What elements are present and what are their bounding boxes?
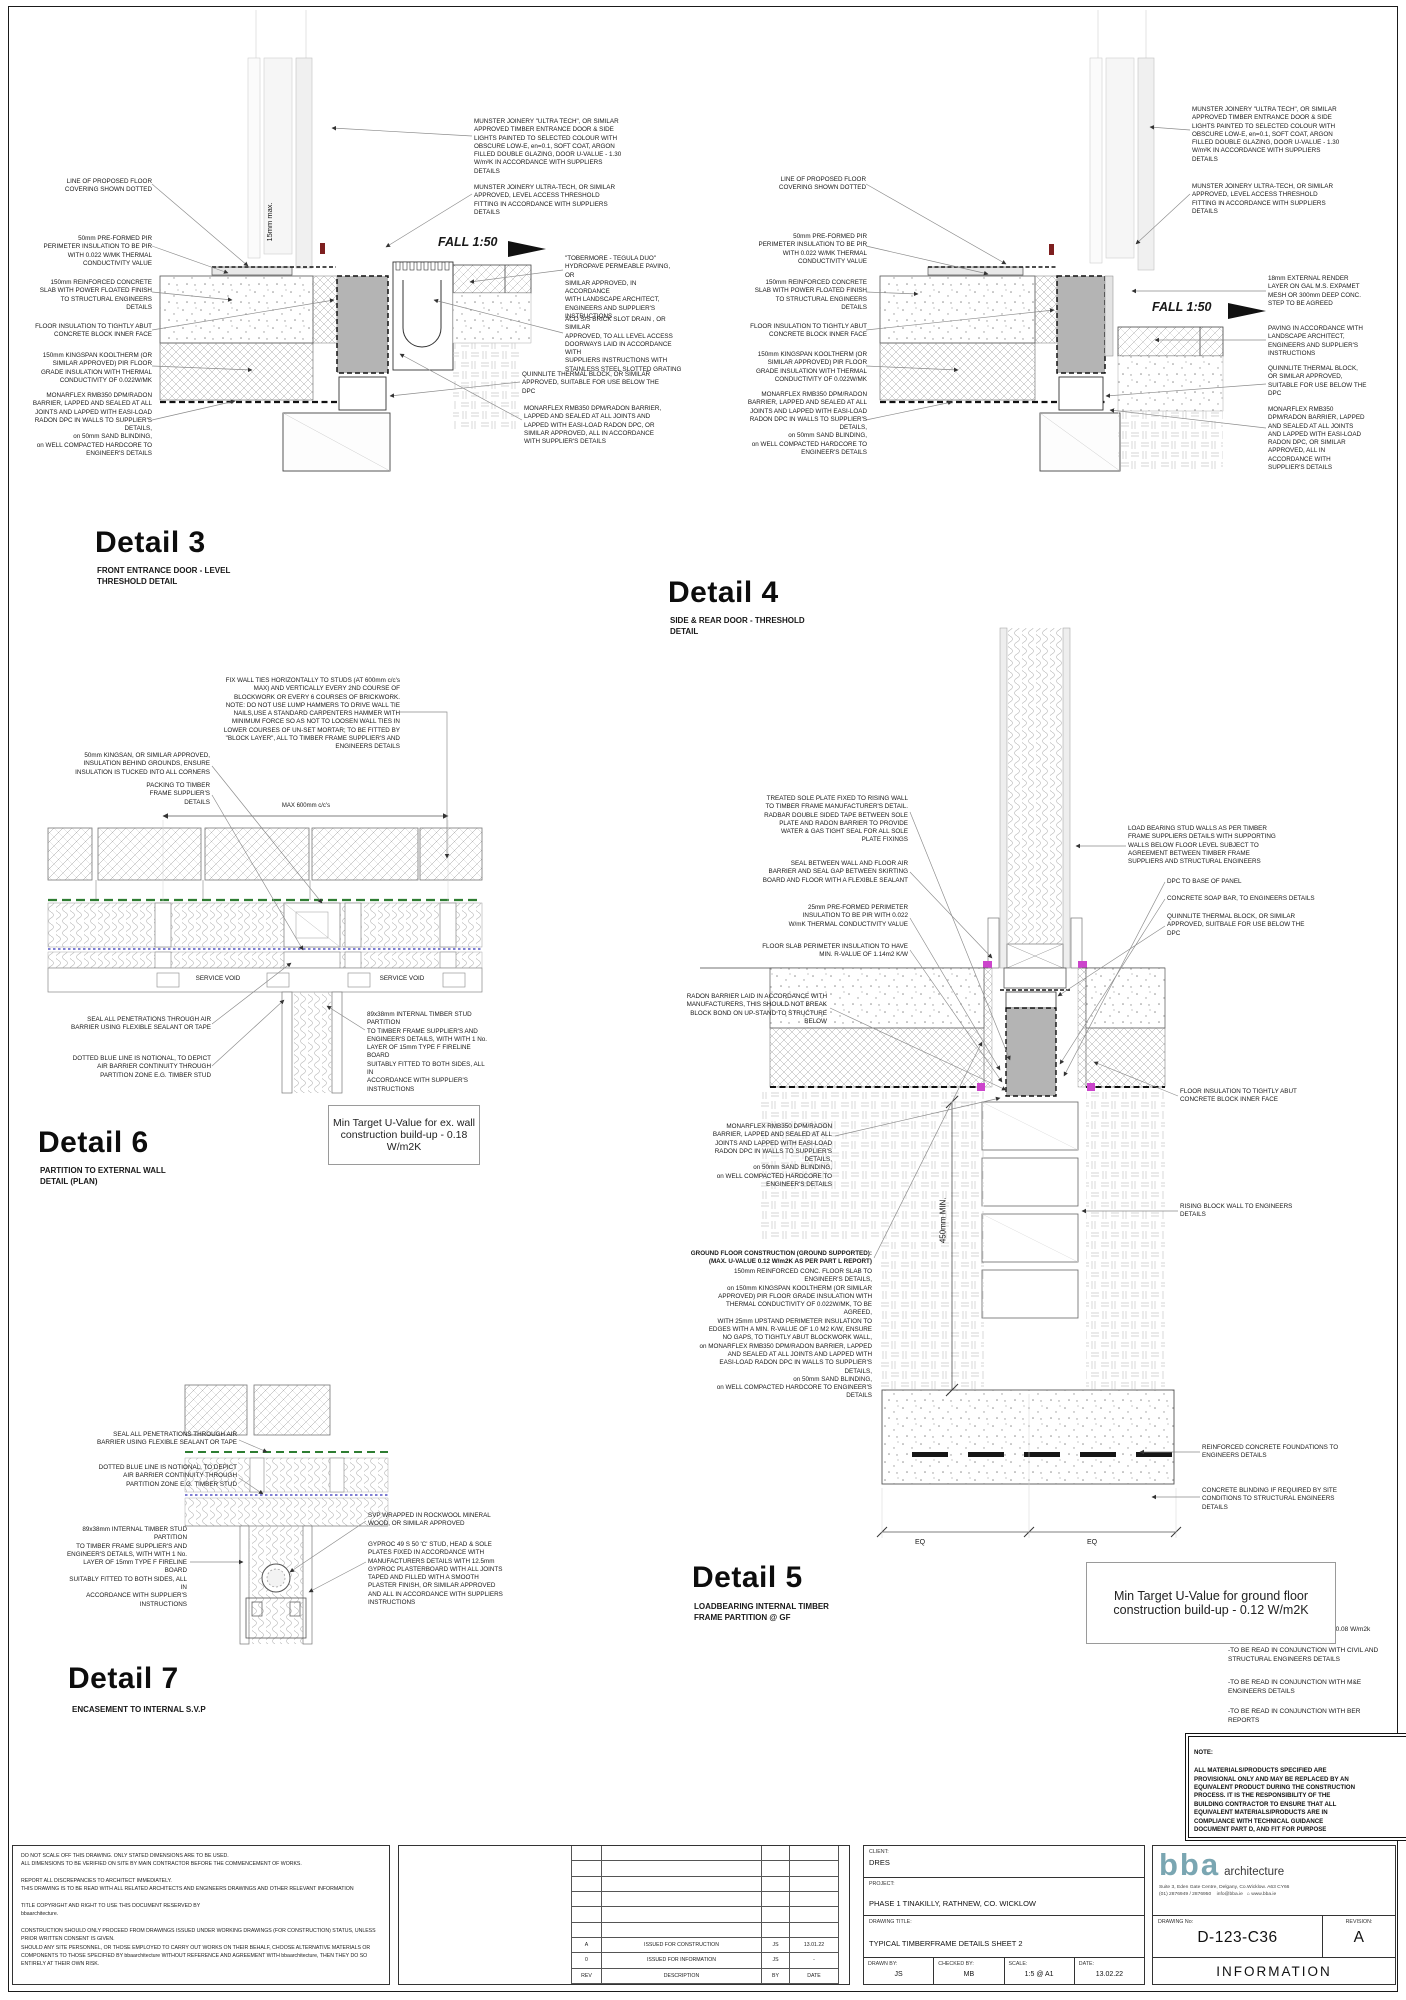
date-value: 13.02.22: [1079, 1971, 1140, 1978]
detail7-subtitle: ENCASEMENT TO INTERNAL S.V.P: [72, 1705, 252, 1716]
issue-cell: [761, 1892, 789, 1907]
signoff-row: DRAWN BY: JS CHECKED BY: MB SCALE: 1:5 @…: [864, 1958, 1144, 1984]
annotation-text: 50mm KINGSAN, OR SIMILAR APPROVED, INSUL…: [62, 752, 210, 777]
annotation-text: 150mm REINFORCED CONCRETE SLAB WITH POWE…: [741, 279, 867, 312]
issue-cell: [601, 1846, 761, 1861]
annotation-text: PACKING TO TIMBER FRAME SUPPLIER'S DETAI…: [110, 782, 210, 807]
issue-cell: [571, 1846, 601, 1861]
annotation-text: MUNSTER JOINERY "ULTRA TECH", OR SIMILAR…: [1192, 106, 1354, 164]
bba-logo-suffix: architecture: [1224, 1866, 1284, 1878]
issue-cell: REV: [571, 1969, 601, 1984]
annotation-text: 450mm MIN.: [939, 1180, 950, 1260]
note-box: NOTE: ALL MATERIALS/PRODUCTS SPECIFIED A…: [1185, 1733, 1406, 1841]
issue-cell: [601, 1892, 761, 1907]
annotation-text: 150mm KINGSPAN KOOLTHERM (OR SIMILAR APP…: [737, 351, 867, 384]
annotation-text: LOAD BEARING STUD WALLS AS PER TIMBER FR…: [1128, 825, 1280, 866]
issue-cell: [601, 1877, 761, 1892]
annotation-text: SERVICE VOID: [372, 975, 432, 983]
client-row: CLIENT: DRES: [864, 1846, 1144, 1878]
drawn-value: JS: [868, 1971, 929, 1978]
issue-cell: ISSUED FOR INFORMATION: [601, 1953, 761, 1968]
drawing-no-value: D-123-C36: [1158, 1929, 1317, 1947]
issue-cell: 0: [571, 1953, 601, 1968]
note-title: NOTE:: [1194, 1749, 1406, 1757]
detail3-title: Detail 3: [95, 528, 315, 558]
issue-cell: [571, 1907, 601, 1922]
issue-cell: [761, 1861, 789, 1876]
drawing-sheet: Detail 3FRONT ENTRANCE DOOR - LEVEL THRE…: [0, 0, 1406, 2000]
annotation-text: QUINNLITE THERMAL BLOCK, OR SIMILAR APPR…: [1167, 913, 1317, 938]
scale-label: SCALE:: [1009, 1961, 1028, 1967]
annotation-text: -TO BE READ IN CONJUNCTION WITH CIVIL AN…: [1228, 1647, 1400, 1664]
project-row: PROJECT: PHASE 1 TINAKILLY, RATHNEW, CO.…: [864, 1878, 1144, 1916]
issue-cell: JS: [761, 1938, 789, 1953]
issue-cell: [761, 1923, 789, 1938]
brand-web[interactable]: ⌂ www.bba.ie: [1247, 1892, 1276, 1897]
scale-value: 1:5 @ A1: [1009, 1971, 1070, 1978]
disclaimer-paragraph: CONSTRUCTION SHOULD ONLY PROCEED FROM DR…: [21, 1927, 381, 1967]
issue-cell: BY: [761, 1969, 789, 1984]
annotation-text: REINFORCED CONCRETE FOUNDATIONS TO ENGIN…: [1202, 1444, 1357, 1461]
annotation-text: MONARFLEX RMB350 DPM/RADON BARRIER, LAPP…: [695, 1123, 832, 1189]
annotation-text: 150mm KINGSPAN KOOLTHERM (OR SIMILAR APP…: [24, 352, 152, 385]
note-text: ALL MATERIALS/PRODUCTS SPECIFIED ARE PRO…: [1194, 1767, 1406, 1834]
annotation-text: SVP WRAPPED IN ROCKWOOL MINERAL WOOD, OR…: [368, 1512, 506, 1529]
annotation-text: 25mm PRE-FORMED PERIMETER INSULATION TO …: [745, 904, 908, 929]
annotation-text: 89x38mm INTERNAL TIMBER STUD PARTITION T…: [367, 1011, 489, 1094]
client-value: DRES: [869, 1858, 1139, 1867]
fall-label: FALL 1:50: [1152, 299, 1222, 316]
issue-cell: [571, 1861, 601, 1876]
annotation-text: 89x38mm INTERNAL TIMBER STUD PARTITION T…: [62, 1526, 187, 1609]
annotation-text: CONCRETE SOAP BAR, TO ENGINEERS DETAILS: [1167, 895, 1332, 903]
annotation-text: 50mm PRE-FORMED PIR PERIMETER INSULATION…: [745, 233, 867, 266]
annotation-text: RISING BLOCK WALL TO ENGINEERS DETAILS: [1180, 1203, 1305, 1220]
annotation-text: 150mm REINFORCED CONCRETE SLAB WITH POWE…: [28, 279, 152, 312]
issue-box: AISSUED FOR CONSTRUCTIONJS13.01.220ISSUE…: [398, 1845, 850, 1985]
issue-cell: [761, 1846, 789, 1861]
drawing-title-value: TYPICAL TIMBERFRAME DETAILS SHEET 2: [869, 1939, 1139, 1948]
issue-cell: [601, 1861, 761, 1876]
annotation-text: MUNSTER JOINERY "ULTRA TECH", OR SIMILAR…: [474, 118, 634, 176]
issue-cell: JS: [761, 1953, 789, 1968]
annotation-text: MUNSTER JOINERY ULTRA-TECH, OR SIMILAR A…: [1192, 183, 1354, 216]
annotation-text: FIX WALL TIES HORIZONTALLY TO STUDS (AT …: [205, 677, 400, 752]
annotation-text: 50mm PRE-FORMED PIR PERIMETER INSULATION…: [32, 235, 152, 268]
detail5-drawing: [700, 628, 1181, 1538]
issue-cell: 13.01.22: [789, 1938, 839, 1953]
annotation-text: -TO BE READ IN CONJUNCTION WITH M&E ENGI…: [1228, 1679, 1400, 1696]
disclaimer-box: DO NOT SCALE OFF THIS DRAWING. ONLY STAT…: [12, 1845, 390, 1985]
issue-cell: [789, 1846, 839, 1861]
title-block: DO NOT SCALE OFF THIS DRAWING. ONLY STAT…: [12, 1845, 1396, 1985]
fall-label: FALL 1:50: [438, 234, 508, 251]
annotation-text: ACO S/S BRICK SLOT DRAIN , OR SIMILAR AP…: [565, 316, 685, 374]
brand-contacts: (01) 2876949 / 2876950 info@bba.ie ⌂ www…: [1159, 1891, 1389, 1898]
detail7-title: Detail 7: [68, 1664, 288, 1694]
checked-value: MB: [938, 1971, 999, 1978]
annotation-text: LINE OF PROPOSED FLOOR COVERING SHOWN DO…: [40, 178, 152, 195]
annotation-text: MAX 600mm c/c's: [248, 803, 364, 811]
drawing-title-row: DRAWING TITLE: TYPICAL TIMBERFRAME DETAI…: [864, 1916, 1144, 1958]
date-label: DATE:: [1079, 1961, 1094, 1967]
brand-phone: (01) 2876949 / 2876950: [1159, 1892, 1211, 1897]
issue-cell: [601, 1907, 761, 1922]
issue-cell: [789, 1892, 839, 1907]
bba-logo: bba: [1159, 1849, 1220, 1880]
annotation-text: FLOOR INSULATION TO TIGHTLY ABUT CONCRET…: [1180, 1088, 1325, 1105]
issue-cell: [761, 1877, 789, 1892]
drawing-no-cell: DRAWING No: D-123-C36: [1153, 1916, 1323, 1957]
threshold-marker: [320, 243, 325, 254]
annotation-text: SERVICE VOID: [188, 975, 248, 983]
issue-cell: [601, 1923, 761, 1938]
disclaimer-paragraph: TITLE COPYRIGHT AND RIGHT TO USE THIS DO…: [21, 1902, 381, 1918]
issue-cell: DESCRIPTION: [601, 1969, 761, 1984]
annotation-text: -TO BE READ IN CONJUNCTION WITH BER REPO…: [1228, 1708, 1400, 1725]
annotation-text: QUINNLITE THERMAL BLOCK, OR SIMILAR APPR…: [522, 371, 664, 396]
annotation-text: FLOOR SLAB PERIMETER INSULATION TO HAVE …: [745, 943, 908, 960]
detail6-subtitle: PARTITION TO EXTERNAL WALL DETAIL (PLAN): [40, 1166, 210, 1188]
issue-cell: [571, 1892, 601, 1907]
disclaimer-paragraph: REPORT ALL DISCREPANCIES TO ARCHITECT IM…: [21, 1877, 381, 1893]
annotation-text: DOTTED BLUE LINE IS NOTIONAL, TO DEPICT …: [62, 1055, 211, 1080]
detail6-title: Detail 6: [38, 1128, 258, 1158]
annotation-text: SEAL ALL PENETRATIONS THROUGH AIR BARRIE…: [56, 1016, 211, 1033]
issue-table: AISSUED FOR CONSTRUCTIONJS13.01.220ISSUE…: [571, 1846, 839, 1984]
annotation-text: SEAL ALL PENETRATIONS THROUGH AIR BARRIE…: [85, 1431, 237, 1448]
project-label: PROJECT:: [869, 1881, 1139, 1887]
annotation-text: MONARFLEX RMB350 DPM/RADON BARRIER, LAPP…: [524, 405, 672, 446]
annotation-text: 15mm max.: [265, 192, 275, 252]
issue-cell: [789, 1861, 839, 1876]
annotation-text: RADON BARRIER LAID IN ACCORDANCE WITH MA…: [672, 993, 827, 1026]
detail4-subtitle: SIDE & REAR DOOR - THRESHOLD DETAIL: [670, 616, 850, 638]
annotation-text: TREATED SOLE PLATE FIXED TO RISING WALL …: [743, 795, 908, 845]
annotation-text: MONARFLEX RMB350 DPM/RADON BARRIER, LAPP…: [733, 391, 867, 457]
disclaimer-paragraph: DO NOT SCALE OFF THIS DRAWING. ONLY STAT…: [21, 1852, 381, 1868]
architect-box: bba architecture Suite 3, Eden Gate Cent…: [1152, 1845, 1396, 1985]
annotation-text: EQ: [890, 1538, 950, 1547]
drawing-no-label: DRAWING No:: [1158, 1919, 1193, 1925]
issue-cell: [761, 1907, 789, 1922]
fall-arrow: [508, 241, 546, 257]
issue-cell: [789, 1877, 839, 1892]
brand-email[interactable]: info@bba.ie: [1217, 1892, 1243, 1897]
brand-header: bba architecture Suite 3, Eden Gate Cent…: [1153, 1846, 1395, 1916]
annotation-text: QUINNLITE THERMAL BLOCK, OR SIMILAR APPR…: [1268, 365, 1368, 398]
project-info-box: CLIENT: DRES PROJECT: PHASE 1 TINAKILLY,…: [863, 1845, 1145, 1985]
issue-cell: -: [789, 1953, 839, 1968]
detail5-title: Detail 5: [692, 1563, 912, 1593]
annotation-text: GROUND FLOOR CONSTRUCTION (GROUND SUPPOR…: [680, 1250, 872, 1267]
u-value-box: Min Target U-Value for ground floor cons…: [1086, 1562, 1336, 1644]
annotation-text: DPC TO BASE OF PANEL: [1167, 878, 1277, 886]
revision-value: A: [1328, 1929, 1390, 1947]
issue-cell: DATE: [789, 1969, 839, 1984]
detail7-drawing: [185, 1385, 388, 1644]
issue-cell: A: [571, 1938, 601, 1953]
project-value: PHASE 1 TINAKILLY, RATHNEW, CO. WICKLOW: [869, 1899, 1139, 1908]
checked-label: CHECKED BY:: [938, 1961, 974, 1967]
annotation-text: FLOOR INSULATION TO TIGHTLY ABUT CONCRET…: [741, 323, 867, 340]
drawn-label: DRAWN BY:: [868, 1961, 898, 1967]
annotation-text: GYPROC 49 S 50 'C' STUD, HEAD & SOLE PLA…: [368, 1541, 510, 1607]
annotation-text: DOTTED BLUE LINE IS NOTIONAL, TO DEPICT …: [85, 1464, 237, 1489]
detail4-title: Detail 4: [668, 578, 888, 608]
detail3-subtitle: FRONT ENTRANCE DOOR - LEVEL THRESHOLD DE…: [97, 566, 277, 588]
annotation-text: "TOBERMORE - TEGULA DUO" HYDROPAVE PERME…: [565, 255, 679, 321]
detail4-drawing: [880, 10, 1266, 471]
annotation-text: PAVING IN ACCORDANCE WITH LANDSCAPE ARCH…: [1268, 325, 1368, 358]
annotation-text: MONARFLEX RMB350 DPM/RADON BARRIER, LAPP…: [20, 392, 152, 458]
annotation-text: EQ: [1062, 1538, 1122, 1547]
revision-label: REVISION:: [1346, 1919, 1373, 1925]
u-value-box: Min Target U-Value for ex. wall construc…: [328, 1105, 480, 1165]
annotation-text: 18mm EXTERNAL RENDER LAYER ON GAL M.S. E…: [1268, 275, 1364, 308]
drawing-title-label: DRAWING TITLE:: [869, 1919, 1139, 1925]
brand-address: Suite 3, Eden Gate Centre, Delgany, Co.W…: [1159, 1884, 1389, 1891]
status-label: INFORMATION: [1153, 1958, 1395, 1984]
annotation-text: CONCRETE BLINDING IF REQUIRED BY SITE CO…: [1202, 1487, 1364, 1512]
issue-cell: [571, 1877, 601, 1892]
annotation-text: MONARFLEX RMB350 DPM/RADON BARRIER, LAPP…: [1268, 406, 1368, 472]
issue-cell: [789, 1923, 839, 1938]
annotation-text: LINE OF PROPOSED FLOOR COVERING SHOWN DO…: [758, 176, 866, 193]
client-label: CLIENT:: [869, 1849, 1139, 1855]
revision-cell: REVISION: A: [1323, 1916, 1395, 1957]
annotation-text: 150mm REINFORCED CONC. FLOOR SLAB TO ENG…: [680, 1268, 872, 1401]
detail5-subtitle: LOADBEARING INTERNAL TIMBER FRAME PARTIT…: [694, 1602, 874, 1624]
annotation-text: SEAL BETWEEN WALL AND FLOOR AIR BARRIER …: [740, 860, 908, 885]
annotation-text: FLOOR INSULATION TO TIGHTLY ABUT CONCRET…: [28, 323, 152, 340]
issue-cell: [571, 1923, 601, 1938]
issue-cell: ISSUED FOR CONSTRUCTION: [601, 1938, 761, 1953]
issue-cell: [789, 1907, 839, 1922]
annotation-text: MUNSTER JOINERY ULTRA-TECH, OR SIMILAR A…: [474, 184, 634, 217]
